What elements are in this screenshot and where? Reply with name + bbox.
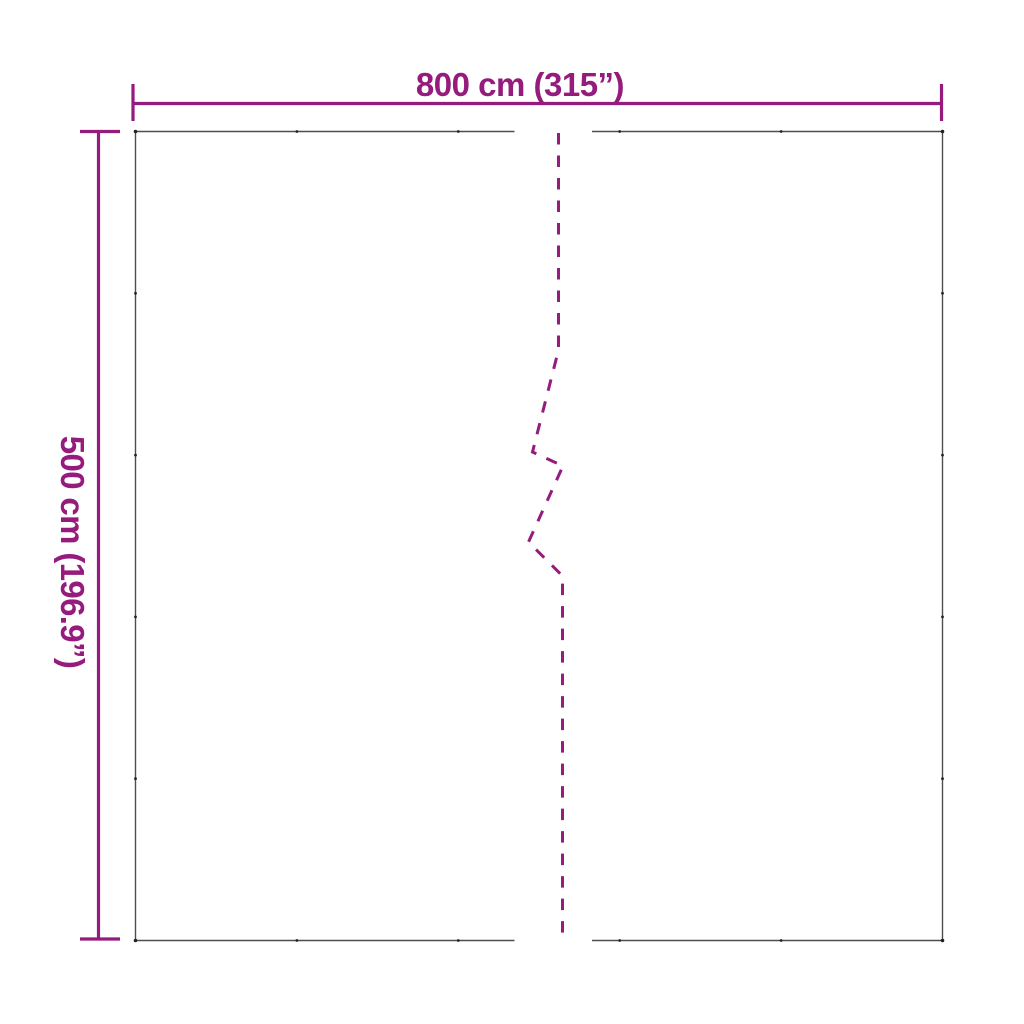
svg-text:500 cm (196.9”): 500 cm (196.9”) bbox=[54, 436, 91, 668]
svg-text:800 cm (315”): 800 cm (315”) bbox=[416, 66, 624, 103]
